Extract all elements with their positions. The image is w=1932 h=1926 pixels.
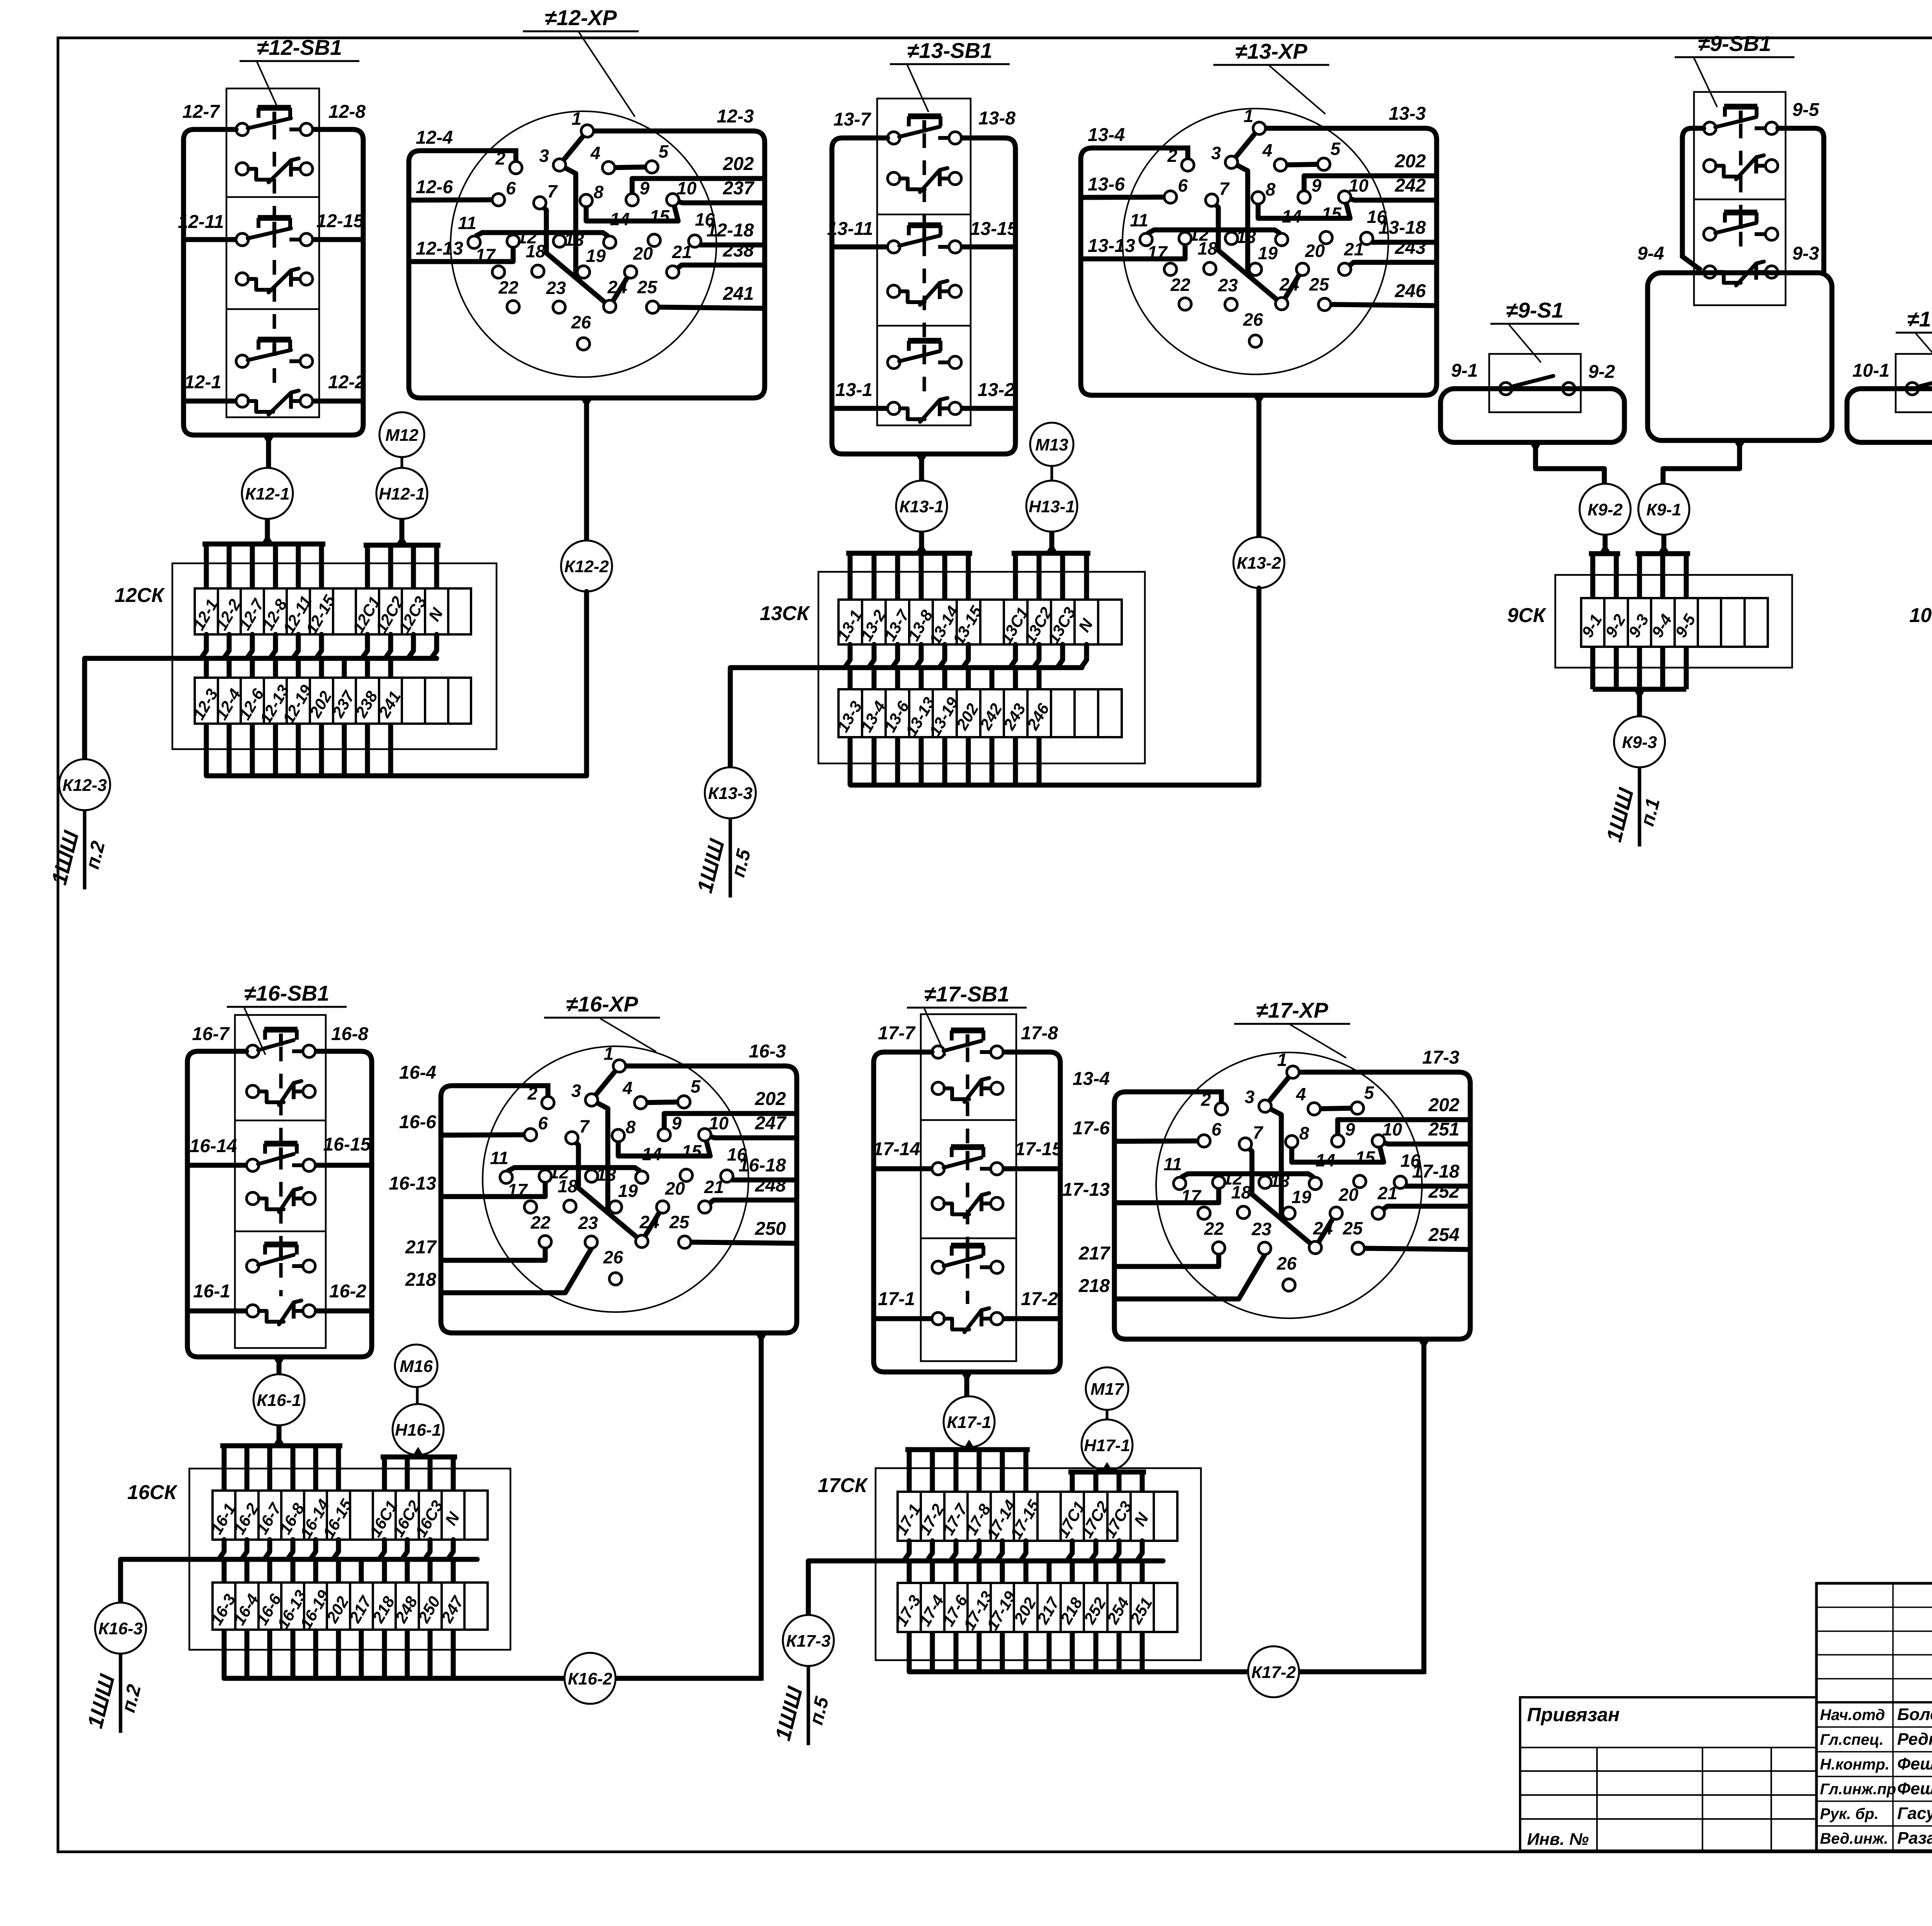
svg-text:5: 5	[1330, 139, 1341, 159]
svg-text:7: 7	[579, 1116, 590, 1136]
svg-text:254: 254	[1428, 1225, 1459, 1245]
svg-text:16-8: 16-8	[331, 1024, 368, 1044]
svg-text:12-7: 12-7	[182, 102, 220, 122]
svg-text:16-1: 16-1	[193, 1281, 230, 1302]
svg-text:К13-2: К13-2	[1236, 554, 1281, 573]
svg-text:5: 5	[658, 141, 669, 161]
svg-text:12-3: 12-3	[717, 106, 754, 127]
svg-text:11: 11	[490, 1148, 509, 1168]
svg-text:17-8: 17-8	[1021, 1023, 1058, 1044]
svg-text:7: 7	[1253, 1122, 1264, 1142]
svg-text:М13: М13	[1035, 435, 1068, 454]
svg-text:К13-3: К13-3	[708, 784, 752, 803]
svg-text:12-8: 12-8	[328, 102, 366, 122]
svg-text:10: 10	[1382, 1119, 1402, 1139]
svg-text:10: 10	[1349, 175, 1369, 195]
svg-text:≠12-ХР: ≠12-ХР	[545, 5, 617, 30]
svg-text:К16-2: К16-2	[568, 1669, 612, 1688]
svg-text:13: 13	[596, 1164, 616, 1185]
svg-text:13-2: 13-2	[978, 380, 1015, 400]
svg-text:238: 238	[723, 240, 754, 261]
svg-text:16-4: 16-4	[399, 1062, 436, 1083]
svg-text:Разанова: Разанова	[1897, 1829, 1932, 1848]
svg-text:25: 25	[1342, 1218, 1363, 1238]
svg-text:К13-1: К13-1	[899, 497, 944, 516]
svg-text:251: 251	[1428, 1119, 1459, 1140]
svg-text:21: 21	[704, 1177, 724, 1197]
svg-text:12СК: 12СК	[114, 584, 165, 607]
svg-text:4: 4	[590, 143, 600, 163]
svg-text:К17-2: К17-2	[1251, 1663, 1296, 1682]
svg-text:К17-3: К17-3	[786, 1632, 830, 1651]
svg-text:218: 218	[1078, 1276, 1110, 1296]
svg-text:24: 24	[1313, 1218, 1333, 1238]
svg-text:12-11: 12-11	[178, 212, 224, 232]
svg-text:246: 246	[1395, 281, 1426, 301]
svg-text:14: 14	[1315, 1150, 1335, 1170]
svg-text:16-15: 16-15	[323, 1134, 371, 1155]
svg-text:17-3: 17-3	[1422, 1047, 1459, 1068]
svg-text:13-15: 13-15	[970, 219, 1018, 239]
svg-text:М17: М17	[1090, 1380, 1124, 1399]
svg-text:26: 26	[1243, 309, 1263, 330]
svg-text:17-14: 17-14	[873, 1139, 920, 1159]
svg-text:≠17-SB1: ≠17-SB1	[924, 982, 1010, 1006]
svg-text:1: 1	[1243, 106, 1253, 126]
svg-text:20: 20	[633, 243, 653, 263]
svg-text:1: 1	[1277, 1050, 1287, 1070]
svg-text:23: 23	[578, 1213, 598, 1233]
svg-text:24: 24	[1279, 274, 1299, 294]
svg-text:К9-2: К9-2	[1588, 500, 1623, 519]
svg-text:25: 25	[1309, 274, 1330, 294]
svg-text:241: 241	[723, 284, 754, 304]
svg-text:3: 3	[539, 146, 549, 166]
svg-text:2: 2	[495, 148, 505, 168]
svg-text:Рук. бр.: Рук. бр.	[1820, 1805, 1879, 1822]
svg-text:18: 18	[1231, 1182, 1251, 1202]
svg-text:Инв. №: Инв. №	[1527, 1830, 1589, 1849]
svg-text:9: 9	[1345, 1119, 1355, 1139]
svg-text:24: 24	[639, 1212, 659, 1232]
svg-text:М12: М12	[385, 426, 418, 445]
svg-text:К16-3: К16-3	[98, 1619, 143, 1638]
svg-text:20: 20	[1338, 1185, 1359, 1205]
svg-text:≠9-SB1: ≠9-SB1	[1698, 31, 1771, 56]
svg-text:243: 243	[1395, 238, 1426, 258]
svg-text:12-15: 12-15	[316, 211, 364, 231]
svg-text:202: 202	[1428, 1095, 1459, 1115]
svg-text:13-6: 13-6	[1088, 174, 1125, 195]
svg-text:252: 252	[1428, 1181, 1459, 1202]
svg-text:17: 17	[1181, 1186, 1202, 1206]
svg-text:15: 15	[1355, 1147, 1376, 1168]
svg-text:12-4: 12-4	[416, 127, 453, 148]
svg-text:18: 18	[526, 241, 546, 261]
svg-text:К12-2: К12-2	[564, 557, 609, 576]
svg-text:22: 22	[1170, 275, 1190, 295]
svg-text:17: 17	[475, 245, 496, 265]
svg-text:Гл.спец.: Гл.спец.	[1820, 1731, 1884, 1748]
svg-text:17: 17	[507, 1180, 528, 1200]
svg-text:1: 1	[604, 1044, 614, 1064]
svg-text:248: 248	[755, 1175, 786, 1196]
svg-text:Н17-1: Н17-1	[1084, 1436, 1130, 1455]
svg-text:9: 9	[1311, 175, 1321, 195]
svg-text:Нач.отд: Нач.отд	[1820, 1707, 1885, 1724]
svg-text:19: 19	[1291, 1187, 1311, 1207]
svg-text:237: 237	[723, 178, 755, 199]
svg-text:Вед.инж.: Вед.инж.	[1820, 1830, 1888, 1847]
svg-text:13: 13	[564, 229, 584, 250]
svg-text:14: 14	[642, 1144, 662, 1164]
svg-text:Н12-1: Н12-1	[379, 484, 425, 503]
svg-text:22: 22	[530, 1212, 551, 1232]
svg-text:13-4: 13-4	[1073, 1069, 1110, 1089]
svg-text:17-15: 17-15	[1015, 1139, 1063, 1159]
svg-text:23: 23	[1251, 1219, 1272, 1239]
svg-text:4: 4	[1296, 1084, 1306, 1104]
svg-text:3: 3	[1245, 1087, 1255, 1107]
svg-text:15: 15	[1321, 204, 1342, 224]
svg-text:16-7: 16-7	[192, 1024, 230, 1044]
svg-text:18: 18	[1197, 238, 1218, 258]
svg-text:21: 21	[672, 242, 692, 262]
svg-text:К12-3: К12-3	[62, 776, 107, 795]
svg-text:≠17-ХР: ≠17-ХР	[1256, 998, 1328, 1022]
svg-text:17-7: 17-7	[878, 1023, 916, 1044]
svg-text:9-2: 9-2	[1588, 362, 1615, 382]
svg-text:21: 21	[1377, 1183, 1397, 1203]
svg-text:26: 26	[571, 312, 591, 332]
svg-text:≠12-SB1: ≠12-SB1	[257, 35, 342, 59]
svg-text:12-13: 12-13	[416, 238, 463, 259]
svg-text:16-18: 16-18	[738, 1155, 786, 1176]
svg-text:12-6: 12-6	[416, 177, 453, 197]
svg-text:17СК: 17СК	[818, 1474, 868, 1497]
svg-text:217: 217	[1078, 1243, 1111, 1264]
svg-text:≠13-ХР: ≠13-ХР	[1235, 39, 1308, 63]
svg-text:Н16-1: Н16-1	[395, 1421, 441, 1440]
svg-text:11: 11	[1163, 1154, 1182, 1174]
svg-text:13-11: 13-11	[827, 219, 873, 239]
svg-text:14: 14	[610, 209, 629, 229]
svg-text:12-2: 12-2	[328, 372, 365, 393]
svg-text:202: 202	[755, 1089, 786, 1109]
svg-text:23: 23	[546, 278, 566, 298]
svg-text:Болотов: Болотов	[1897, 1705, 1932, 1724]
svg-text:15: 15	[682, 1141, 702, 1161]
svg-text:8: 8	[1265, 179, 1276, 199]
svg-text:17: 17	[1147, 242, 1168, 262]
svg-text:2: 2	[1167, 146, 1177, 166]
svg-text:9СК: 9СК	[1507, 604, 1546, 627]
svg-text:9: 9	[639, 178, 650, 198]
svg-text:М16: М16	[400, 1357, 433, 1376]
svg-text:9: 9	[672, 1113, 682, 1133]
svg-text:13: 13	[1270, 1171, 1290, 1191]
svg-text:26: 26	[1276, 1253, 1297, 1273]
svg-text:242: 242	[1395, 175, 1426, 196]
svg-text:4: 4	[1262, 140, 1272, 160]
svg-text:25: 25	[637, 277, 658, 297]
svg-text:К16-1: К16-1	[257, 1391, 301, 1410]
svg-text:К9-1: К9-1	[1646, 500, 1682, 519]
svg-text:250: 250	[755, 1219, 786, 1239]
svg-text:Фешин: Фешин	[1897, 1754, 1932, 1773]
svg-text:19: 19	[618, 1181, 638, 1201]
svg-text:К9-3: К9-3	[1622, 733, 1657, 752]
svg-text:13-4: 13-4	[1088, 125, 1125, 145]
svg-text:218: 218	[405, 1270, 436, 1290]
svg-text:16-6: 16-6	[399, 1112, 436, 1132]
svg-text:9-4: 9-4	[1637, 243, 1664, 264]
svg-text:14: 14	[1282, 206, 1301, 226]
svg-text:9-1: 9-1	[1451, 360, 1478, 381]
svg-text:13: 13	[1236, 227, 1256, 247]
svg-text:10-1: 10-1	[1852, 360, 1889, 381]
svg-text:19: 19	[1258, 243, 1278, 263]
svg-text:3: 3	[1211, 143, 1221, 163]
svg-text:9-3: 9-3	[1792, 243, 1819, 264]
svg-text:6: 6	[506, 178, 516, 198]
svg-text:16-3: 16-3	[749, 1041, 786, 1062]
svg-text:11: 11	[458, 213, 476, 233]
svg-text:13-8: 13-8	[978, 108, 1015, 129]
svg-text:13-1: 13-1	[835, 380, 872, 400]
svg-text:1: 1	[571, 109, 582, 129]
svg-text:17-6: 17-6	[1073, 1118, 1110, 1139]
svg-text:12-18: 12-18	[706, 220, 754, 241]
svg-text:Гл.инж.пр: Гл.инж.пр	[1820, 1781, 1896, 1798]
svg-text:2: 2	[1201, 1090, 1211, 1110]
svg-text:10СК: 10СК	[1909, 604, 1932, 627]
svg-text:11: 11	[1130, 210, 1148, 230]
svg-text:9-5: 9-5	[1792, 100, 1820, 120]
svg-text:13-7: 13-7	[833, 109, 871, 130]
svg-text:13-18: 13-18	[1378, 218, 1426, 238]
svg-text:12-1: 12-1	[184, 372, 221, 393]
svg-text:8: 8	[626, 1117, 636, 1137]
svg-text:21: 21	[1344, 239, 1364, 259]
svg-text:≠10-S1: ≠10-S1	[1907, 307, 1932, 331]
svg-text:23: 23	[1218, 275, 1238, 295]
svg-text:К17-1: К17-1	[947, 1413, 991, 1432]
svg-text:Н.контр.: Н.контр.	[1820, 1756, 1889, 1773]
svg-text:17-1: 17-1	[878, 1289, 915, 1309]
svg-text:16СК: 16СК	[127, 1481, 177, 1504]
svg-text:3: 3	[571, 1081, 581, 1101]
svg-text:К12-1: К12-1	[245, 484, 289, 503]
svg-text:17-13: 17-13	[1062, 1180, 1110, 1200]
svg-text:8: 8	[1299, 1123, 1309, 1143]
svg-text:17-18: 17-18	[1412, 1161, 1459, 1182]
svg-text:Н13-1: Н13-1	[1029, 497, 1075, 516]
svg-text:≠16-ХР: ≠16-ХР	[566, 992, 638, 1016]
svg-text:≠16-SB1: ≠16-SB1	[244, 981, 330, 1005]
svg-text:5: 5	[690, 1076, 701, 1096]
svg-text:10: 10	[709, 1113, 729, 1133]
svg-text:202: 202	[1395, 151, 1426, 172]
svg-text:22: 22	[498, 277, 519, 297]
svg-text:8: 8	[594, 182, 604, 202]
svg-text:16-13: 16-13	[389, 1173, 436, 1194]
svg-text:7: 7	[547, 181, 558, 201]
svg-text:7: 7	[1219, 178, 1230, 199]
svg-text:13-13: 13-13	[1088, 236, 1135, 256]
svg-text:≠9-S1: ≠9-S1	[1506, 298, 1563, 322]
svg-text:15: 15	[650, 206, 670, 226]
svg-text:16-14: 16-14	[190, 1136, 237, 1156]
svg-text:4: 4	[622, 1078, 633, 1098]
svg-text:10: 10	[677, 178, 697, 198]
svg-text:6: 6	[1211, 1119, 1221, 1139]
svg-text:Привязан: Привязан	[1527, 1704, 1620, 1725]
svg-text:17-2: 17-2	[1021, 1289, 1058, 1309]
svg-text:Фешин: Фешин	[1897, 1779, 1932, 1798]
svg-text:6: 6	[1178, 175, 1188, 195]
svg-text:20: 20	[1304, 241, 1325, 261]
svg-text:217: 217	[405, 1237, 437, 1258]
svg-text:≠13-SB1: ≠13-SB1	[907, 38, 993, 63]
svg-text:22: 22	[1204, 1219, 1224, 1239]
svg-text:5: 5	[1364, 1083, 1374, 1103]
svg-text:16-2: 16-2	[329, 1281, 366, 1302]
svg-text:13СК: 13СК	[760, 602, 810, 625]
svg-text:Гасумянц: Гасумянц	[1897, 1804, 1932, 1823]
svg-text:2: 2	[527, 1083, 537, 1103]
svg-text:18: 18	[558, 1176, 578, 1196]
svg-text:247: 247	[755, 1113, 787, 1134]
svg-text:25: 25	[669, 1212, 690, 1232]
svg-text:26: 26	[603, 1247, 623, 1267]
svg-text:202: 202	[723, 154, 754, 174]
svg-text:19: 19	[586, 246, 606, 266]
svg-text:20: 20	[665, 1178, 685, 1198]
svg-text:6: 6	[538, 1113, 548, 1133]
svg-text:13-3: 13-3	[1389, 104, 1426, 124]
svg-text:Редникин: Редникин	[1897, 1730, 1932, 1749]
svg-text:24: 24	[607, 277, 627, 297]
